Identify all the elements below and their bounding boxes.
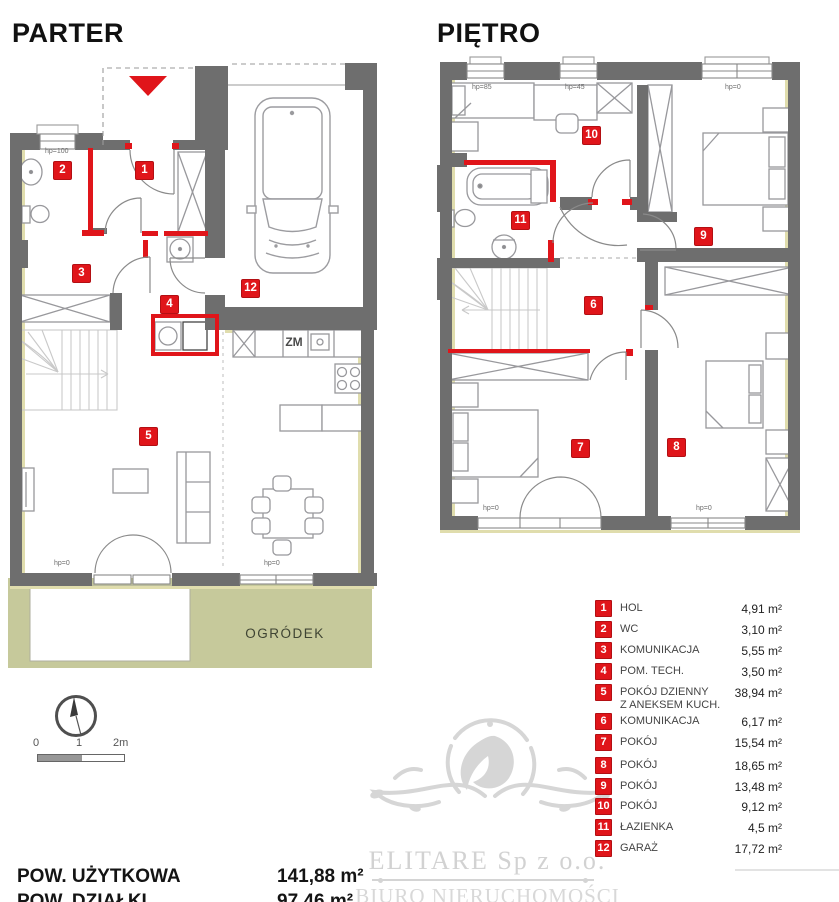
legend-label: POM. TECH. [620, 665, 684, 677]
legend-area: 3,10 m² [741, 623, 782, 637]
legend-label: HOL [620, 602, 643, 614]
room-marker-4: 4 [160, 295, 179, 314]
room-marker-6: 6 [584, 296, 603, 315]
scale-bar [37, 754, 125, 762]
legend-row: 3KOMUNIKACJA5,55 m² [595, 642, 782, 659]
usable-area-value: 141,88 m² [277, 866, 364, 888]
legend-label: POKÓJ [620, 759, 657, 771]
legend-num-3: 3 [595, 642, 612, 659]
legend-area: 3,50 m² [741, 665, 782, 679]
compass-icon [50, 690, 102, 742]
watermark-divider-right [735, 869, 839, 871]
legend-num-11: 11 [595, 819, 612, 836]
legend-area: 5,55 m² [741, 644, 782, 658]
legend-area: 13,48 m² [735, 780, 782, 794]
garden-label: OGRÓDEK [215, 626, 355, 641]
plot-area-value: 97,46 m² [277, 891, 353, 902]
legend-label: WC [620, 623, 638, 635]
hp-label: hp=0 [725, 84, 741, 91]
car [247, 98, 338, 273]
room-marker-3: 3 [72, 264, 91, 283]
legend-num-4: 4 [595, 663, 612, 680]
scale-0: 0 [33, 737, 39, 749]
legend-row: 5POKÓJ DZIENNYZ ANEKSEM KUCH.38,94 m² [595, 684, 782, 701]
terrace [30, 586, 190, 661]
legend-row: 10POKÓJ9,12 m² [595, 798, 782, 815]
legend-area: 18,65 m² [735, 759, 782, 773]
plot-area-label: POW. DZIAŁKI [17, 891, 147, 902]
legend-num-2: 2 [595, 621, 612, 638]
room-marker-1: 1 [135, 161, 154, 180]
pietro-floorplan [420, 55, 839, 535]
legend-label: KOMUNIKACJA [620, 715, 699, 727]
hp-label: hp=0 [483, 505, 499, 512]
legend-label: POKÓJ [620, 780, 657, 792]
watermark-divider [372, 879, 594, 881]
watermark-ornament [355, 718, 625, 846]
hp-label: hp=0 [54, 560, 70, 567]
legend-area: 15,54 m² [735, 736, 782, 750]
legend-label: POKÓJ [620, 736, 657, 748]
watermark-company: ELITARE Sp z o.o. [355, 846, 620, 876]
legend-row: 8POKÓJ18,65 m² [595, 757, 782, 774]
legend-area: 38,94 m² [735, 686, 782, 700]
room-marker-9: 9 [694, 227, 713, 246]
legend-row: 4POM. TECH.3,50 m² [595, 663, 782, 680]
legend-num-10: 10 [595, 798, 612, 815]
room-marker-7: 7 [571, 439, 590, 458]
legend-label: POKÓJ [620, 800, 657, 812]
legend-num-6: 6 [595, 713, 612, 730]
legend-num-9: 9 [595, 778, 612, 795]
watermark-subtitle: BIURO NIERUCHOMOŚCI [355, 884, 620, 902]
legend-num-1: 1 [595, 600, 612, 617]
hp-label: hp=45 [565, 84, 585, 91]
legend-row: 9POKÓJ13,48 m² [595, 778, 782, 795]
room-marker-10: 10 [582, 126, 601, 145]
floorplan-sheet: PARTER PIĘTRO ELITARE Sp z o.o. BIURO NI… [0, 0, 839, 902]
legend-num-5: 5 [595, 684, 612, 701]
legend-label: ŁAZIENKA [620, 821, 673, 833]
parter-title: PARTER [12, 18, 124, 49]
legend-area: 6,17 m² [741, 715, 782, 729]
legend-num-7: 7 [595, 734, 612, 751]
legend-label: GARAŻ [620, 842, 658, 854]
hp-label: hp=100 [45, 148, 69, 155]
room-marker-2: 2 [53, 161, 72, 180]
legend-area: 4,91 m² [741, 602, 782, 616]
legend-area: 4,5 m² [748, 821, 782, 835]
legend-row: 6KOMUNIKACJA6,17 m² [595, 713, 782, 730]
usable-area-label: POW. UŻYTKOWA [17, 866, 181, 888]
legend-row: 11ŁAZIENKA4,5 m² [595, 819, 782, 836]
legend-num-8: 8 [595, 757, 612, 774]
room-marker-5: 5 [139, 427, 158, 446]
legend-label: KOMUNIKACJA [620, 644, 699, 656]
legend-row: 1HOL4,91 m² [595, 600, 782, 617]
legend-row: 7POKÓJ15,54 m² [595, 734, 782, 751]
room-marker-8: 8 [667, 438, 686, 457]
hp-label: hp=0 [696, 505, 712, 512]
hp-label: hp=85 [472, 84, 492, 91]
legend-label-line2: Z ANEKSEM KUCH. [620, 699, 720, 711]
legend-num-12: 12 [595, 840, 612, 857]
legend-row: 2WC3,10 m² [595, 621, 782, 638]
room-marker-12: 12 [241, 279, 260, 298]
hp-label: hp=0 [264, 560, 280, 567]
scale-1: 1 [76, 737, 82, 749]
legend-label: POKÓJ DZIENNY [620, 686, 709, 698]
legend-area: 17,72 m² [735, 842, 782, 856]
room-marker-11: 11 [511, 211, 530, 230]
scale-2m: 2m [113, 737, 128, 749]
kitchen-zm-label: ZM [281, 335, 307, 349]
pietro-title: PIĘTRO [437, 18, 541, 49]
legend-area: 9,12 m² [741, 800, 782, 814]
legend-row: 12GARAŻ17,72 m² [595, 840, 782, 857]
